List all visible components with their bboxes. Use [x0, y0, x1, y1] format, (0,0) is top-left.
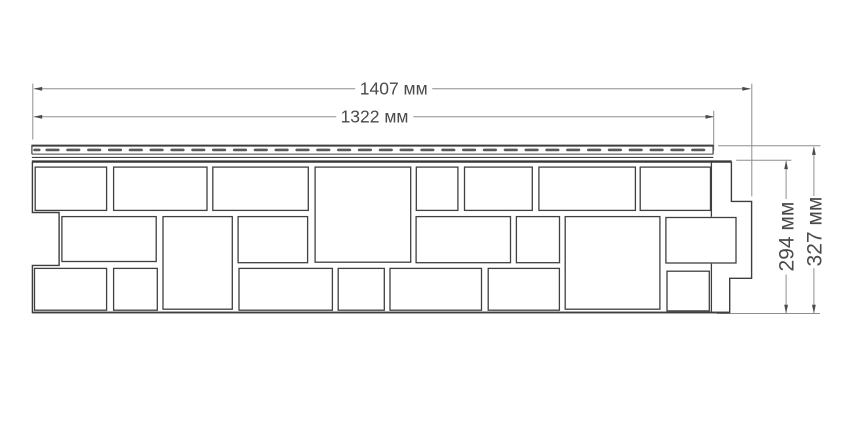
svg-text:294 мм: 294 мм: [776, 202, 799, 272]
svg-text:1407 мм: 1407 мм: [360, 79, 428, 99]
svg-text:327 мм: 327 мм: [804, 197, 827, 267]
svg-text:1322 мм: 1322 мм: [341, 107, 409, 127]
